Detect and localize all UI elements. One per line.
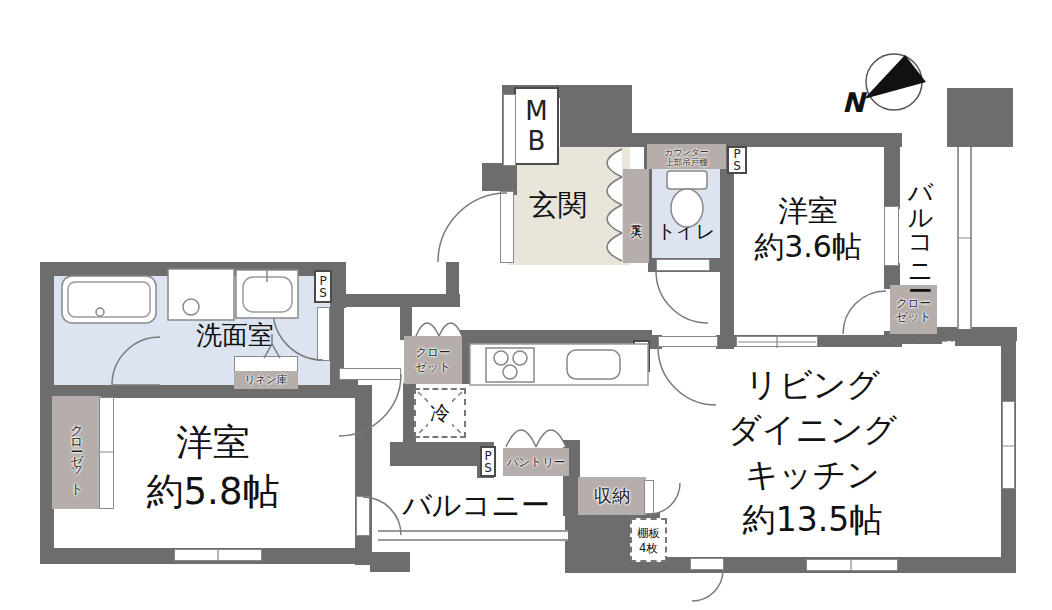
- door-storage-leaf: [644, 480, 654, 514]
- pipe-space-kitchen: PS: [633, 340, 650, 372]
- room-ldk-label: リビングダイニング キッチン約13.5帖: [685, 362, 940, 550]
- kitchen-sink-icon: [567, 350, 620, 379]
- window-ldk-right: [1002, 401, 1015, 489]
- closet-center-label: クローゼット: [415, 345, 450, 375]
- pipe-space-washroom: PS: [314, 270, 332, 303]
- compass-north-label: N: [842, 87, 868, 118]
- wall: [400, 306, 412, 340]
- counter-shelf: カウンター上部吊戸棚: [647, 144, 726, 169]
- ps-label: PS: [484, 450, 493, 474]
- closet-left-label: クローゼット: [68, 415, 86, 489]
- entrance-door-arc: [438, 193, 507, 262]
- sliding-door-western-small: [736, 336, 818, 347]
- pipe-space-pantry: PS: [480, 446, 496, 477]
- closet-right-door-arc: [843, 291, 886, 334]
- stove-burner: [494, 351, 508, 365]
- ldk-bottom-door-arc: [692, 570, 723, 601]
- wall: [446, 262, 459, 307]
- storage: 収納: [578, 477, 646, 515]
- room-washroom-label: 洗面室: [165, 318, 305, 348]
- wall-pillar: [947, 88, 1013, 147]
- wall: [716, 335, 734, 349]
- ps-label: PS: [319, 275, 328, 299]
- pantry-bifold-doors: [506, 430, 566, 447]
- room-balcony-bottom-label: バルコニー: [393, 486, 559, 520]
- door-toilet-leaf: [656, 259, 710, 271]
- closet-center-bifold-doors: [416, 323, 462, 336]
- counter-shelf-label: カウンター上部吊戸棚: [665, 147, 708, 167]
- wall: [560, 85, 632, 147]
- door-ldk-bottom: [690, 558, 724, 570]
- wall: [40, 262, 332, 276]
- toilet-floor: [650, 167, 722, 262]
- room-entrance-label: 玄関: [516, 186, 600, 222]
- shoe-cabinet: 下足入: [623, 169, 649, 263]
- door-ldk-hall-leaf: [658, 336, 718, 347]
- kitchen-counter: [470, 344, 648, 385]
- stove-burner: [513, 351, 527, 365]
- room-western-small-label: 洋室約3.6帖: [722, 193, 894, 273]
- room-toilet-label: トイレ: [650, 219, 722, 245]
- refrigerator-space: 冷: [414, 388, 466, 438]
- wall: [482, 163, 515, 191]
- refrigerator-label: 冷: [428, 400, 452, 427]
- wall: [332, 294, 460, 307]
- room-balcony-right-label: バルコニー: [903, 146, 937, 296]
- door-western-main-leaf: [339, 368, 401, 380]
- pantry-label: パントリー: [507, 455, 566, 470]
- balcony-railing: [378, 530, 568, 541]
- room-western-main-label: 洋室約5.8帖: [88, 418, 338, 523]
- window-ldk-bottom: [806, 559, 898, 571]
- linen-door: [234, 356, 298, 372]
- door-washroom-leaf: [317, 307, 330, 361]
- door-balcony-leaf: [356, 496, 370, 536]
- shelf-note: 棚板4枚: [630, 518, 667, 562]
- wall: [460, 330, 652, 344]
- meter-box-label: MB: [523, 96, 551, 156]
- stove-icon: [486, 348, 534, 382]
- wall: [330, 306, 344, 370]
- door-entrance-leaf: [500, 191, 514, 263]
- compass-icon: N: [842, 54, 926, 118]
- linen-storage: リネン庫: [234, 371, 298, 389]
- balcony-railing: [957, 147, 972, 329]
- stove-burner: [503, 365, 517, 379]
- window-western-main-bottom: [174, 549, 262, 561]
- linen-label: リネン庫: [245, 373, 288, 387]
- pipe-space-toilet: PS: [727, 146, 747, 174]
- ps-label: PS: [637, 344, 646, 368]
- toilet-door-arc: [656, 271, 708, 323]
- wall: [355, 385, 372, 565]
- closet-center: クローゼット: [404, 336, 462, 384]
- wall: [370, 552, 410, 572]
- meter-box: MB: [514, 87, 559, 165]
- pantry: パントリー: [503, 448, 569, 476]
- shelf-note-label: 棚板4枚: [637, 526, 660, 555]
- closet-right-label: クローゼット: [896, 296, 931, 324]
- ps-label: PS: [733, 148, 742, 172]
- storage-label: 収納: [594, 484, 630, 508]
- floor-plan: クローゼット クローゼット クローゼット リネン庫 パントリー 収納 下足入 カ…: [0, 0, 1052, 610]
- meter-box-door: [503, 94, 516, 166]
